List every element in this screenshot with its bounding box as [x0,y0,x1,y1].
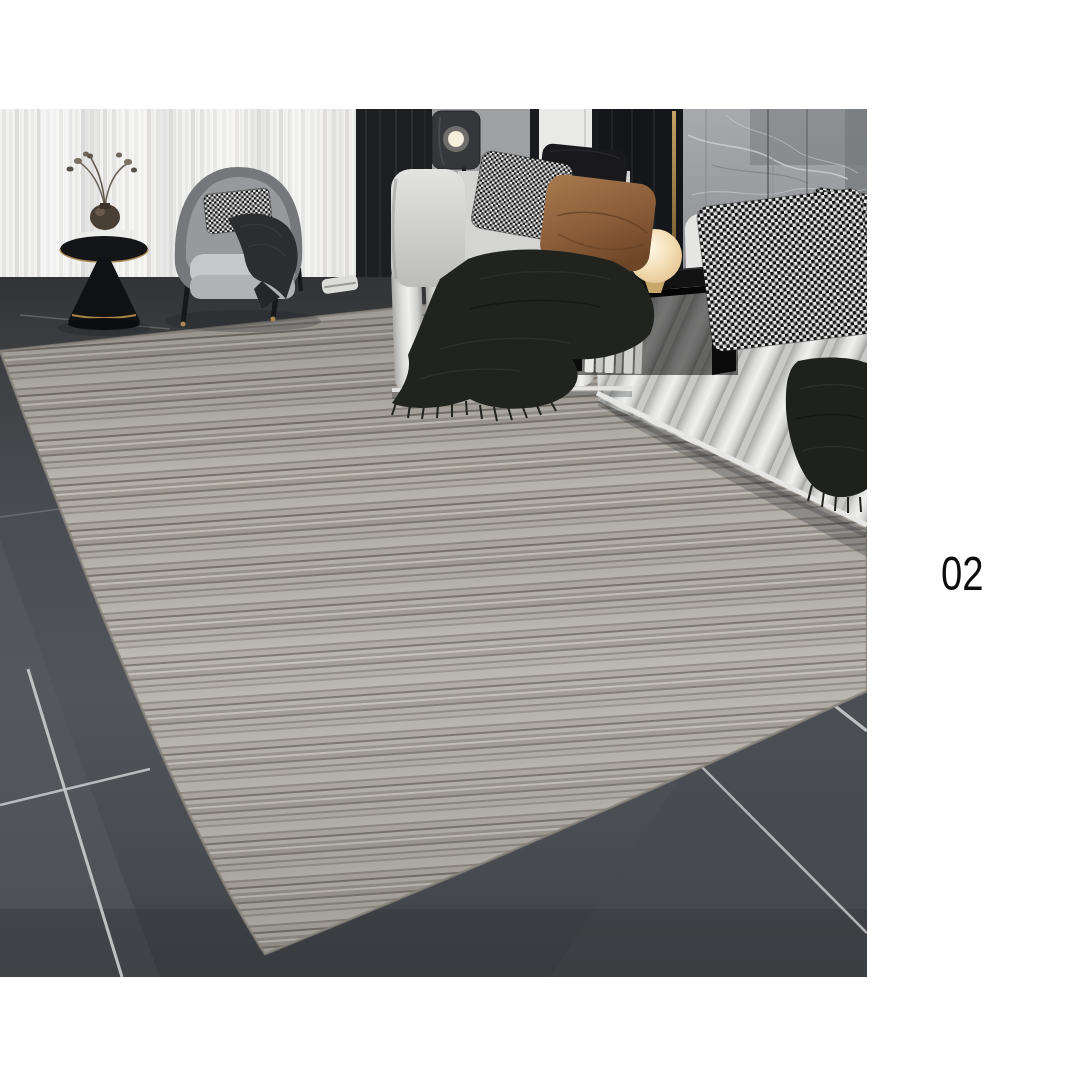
armchair-shadow [165,310,321,332]
houndstooth-cushion-large [696,187,867,352]
product-photo [0,109,867,977]
floor-lamp-bulb [448,131,464,147]
canvas: 02 [0,0,1080,1080]
gold-trim [672,111,676,243]
cushions-right [696,187,867,353]
photo-index-label: 02 [941,549,984,598]
living-room-scene [0,109,867,977]
